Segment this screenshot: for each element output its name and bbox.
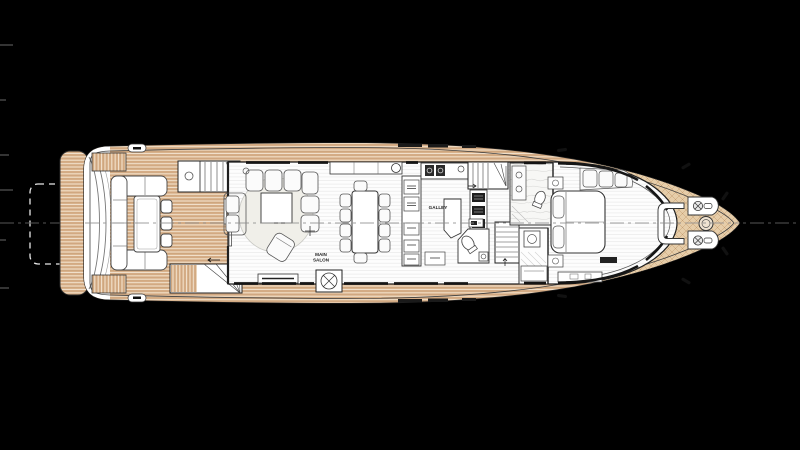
deck-stool bbox=[161, 200, 172, 213]
sink-icon bbox=[436, 165, 445, 176]
cabin-side-table bbox=[600, 257, 617, 263]
cleat-icon bbox=[133, 297, 141, 300]
galley-label: GALLEY bbox=[429, 205, 448, 210]
pilothouse-stairs bbox=[468, 162, 508, 189]
forward-bathroom bbox=[510, 163, 553, 225]
shower-icon bbox=[524, 231, 540, 247]
sink-icon bbox=[479, 252, 488, 261]
double-bed bbox=[551, 191, 605, 253]
pillow bbox=[553, 196, 564, 218]
vanity bbox=[512, 166, 526, 200]
nightstand bbox=[548, 255, 563, 267]
deck-stool bbox=[161, 234, 172, 247]
nightstand bbox=[548, 177, 563, 189]
pillow bbox=[553, 226, 564, 248]
sink-icon bbox=[425, 165, 434, 176]
forward-shower-room bbox=[519, 228, 548, 284]
main-salon-label-line1: MAIN bbox=[315, 252, 327, 257]
windlass-pad bbox=[688, 197, 718, 215]
dining-table bbox=[352, 191, 378, 253]
coffee-table bbox=[261, 193, 292, 223]
aft-deck-table bbox=[134, 196, 160, 252]
windlass-pad bbox=[688, 231, 718, 249]
accommodation-stairs-down bbox=[495, 222, 519, 266]
deck-equipment-box bbox=[316, 270, 342, 292]
cabin-sofa bbox=[580, 168, 633, 190]
yacht-floorplan-screenshot: MAIN SALON bbox=[0, 0, 800, 450]
main-salon-label-line2: SALON bbox=[313, 258, 330, 263]
cleat-icon bbox=[133, 147, 141, 150]
yacht-deck-plan: MAIN SALON bbox=[0, 0, 800, 450]
